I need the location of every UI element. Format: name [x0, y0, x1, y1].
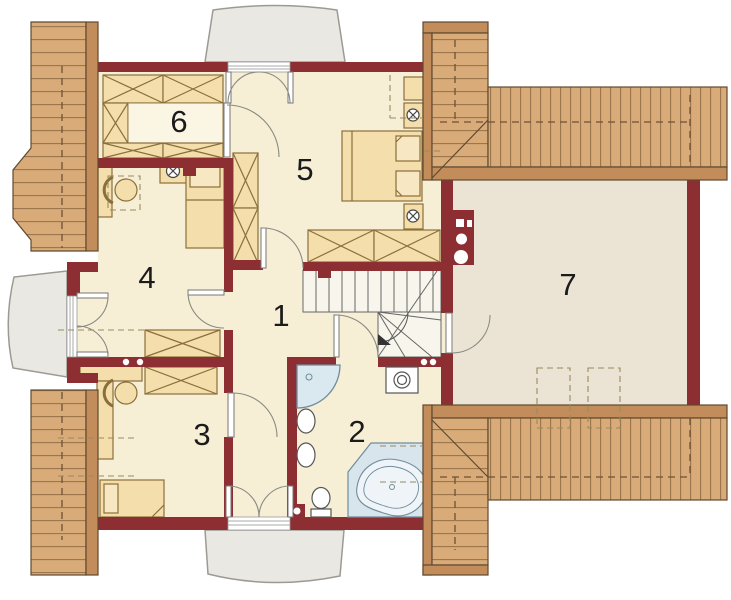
nightstand-room5-bottom — [404, 204, 423, 229]
floor-plan-canvas: 1 2 3 4 5 6 7 — [0, 0, 731, 600]
post-dot — [421, 359, 427, 365]
room-label-4: 4 — [138, 260, 155, 295]
room-label-3: 3 — [193, 417, 210, 452]
sink — [297, 409, 315, 433]
pillow — [104, 484, 118, 513]
wardrobe-room3 — [145, 367, 217, 394]
bed-room5 — [342, 131, 422, 201]
sink — [297, 443, 315, 467]
wardrobe-room6-top — [103, 75, 223, 103]
washing-machine — [386, 367, 418, 393]
post-dot — [430, 359, 436, 365]
roof-deck-top-right — [423, 22, 727, 180]
room-label-1: 1 — [272, 298, 289, 333]
floor-plan-drawing: 1 2 3 4 5 6 7 — [0, 0, 731, 600]
wall-tab — [183, 168, 196, 176]
wardrobe-room6-left — [103, 103, 128, 143]
flue-pipe — [454, 250, 468, 264]
post-dot — [294, 508, 301, 515]
pillow — [396, 136, 420, 161]
room-label-2: 2 — [348, 414, 365, 449]
flue-vent — [467, 220, 472, 227]
cabinet-room5 — [404, 77, 423, 100]
wall-tab — [318, 271, 331, 278]
roof-deck-bottom-right — [423, 405, 727, 575]
roof-deck-bottom-left — [31, 390, 98, 575]
nightstand-room5-top — [404, 103, 423, 128]
pillow — [396, 171, 420, 196]
bed-room3 — [100, 480, 164, 517]
dormer-left — [8, 271, 67, 377]
roof-deck-top-left — [13, 22, 98, 251]
room-label-7: 7 — [559, 267, 576, 302]
room-label-6: 6 — [170, 104, 187, 139]
wardrobe-room4 — [145, 330, 220, 357]
toilet — [311, 488, 331, 518]
wardrobe-room6-bottom — [103, 143, 223, 158]
post-dot — [137, 359, 143, 365]
chimney — [453, 210, 474, 265]
room-label-5: 5 — [296, 152, 313, 187]
wardrobe-room5-column — [233, 153, 258, 263]
flue-pipe — [456, 234, 467, 245]
dormer-top — [205, 6, 345, 63]
post-dot — [123, 359, 129, 365]
dormer-bottom — [205, 530, 344, 583]
flue-vent — [456, 219, 464, 227]
wardrobe-room5-row — [308, 230, 440, 262]
